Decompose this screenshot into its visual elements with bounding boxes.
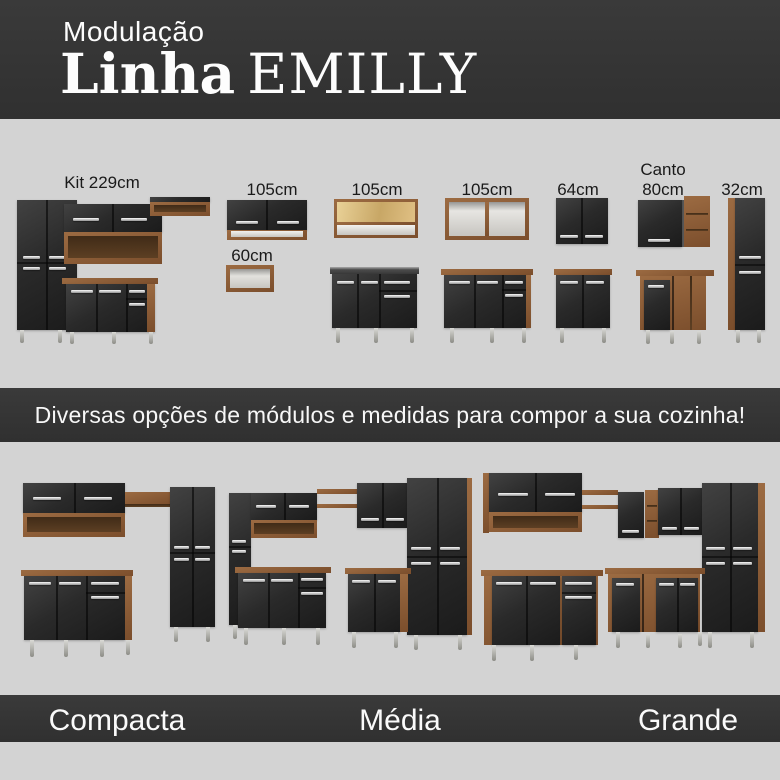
title-brand: Linha (60, 41, 235, 106)
banner-text: Diversas opções de módulos e medidas par… (0, 388, 780, 442)
module-label-105cm-b: 105cm (351, 180, 402, 199)
kitchens-band (0, 442, 780, 695)
module-label-60cm: 60cm (231, 246, 273, 265)
flyer: Modulação LinhaEMILLY Kit 229cm 105cm 60… (0, 0, 780, 780)
size-label-grande: Grande (638, 704, 738, 738)
module-label-32cm: 32cm (721, 180, 763, 199)
title-name: EMILLY (247, 42, 477, 106)
module-label-105cm-a: 105cm (246, 180, 297, 199)
footer-strip (0, 742, 780, 780)
module-label-canto: Canto (640, 160, 685, 179)
module-label-64cm: 64cm (557, 180, 599, 199)
module-label-kit-229cm: Kit 229cm (64, 173, 140, 192)
size-label-compacta: Compacta (49, 704, 186, 738)
page-title: LinhaEMILLY (60, 44, 477, 104)
module-label-105cm-c: 105cm (461, 180, 512, 199)
module-label-80cm: 80cm (642, 180, 684, 199)
size-label-media: Média (359, 704, 441, 738)
